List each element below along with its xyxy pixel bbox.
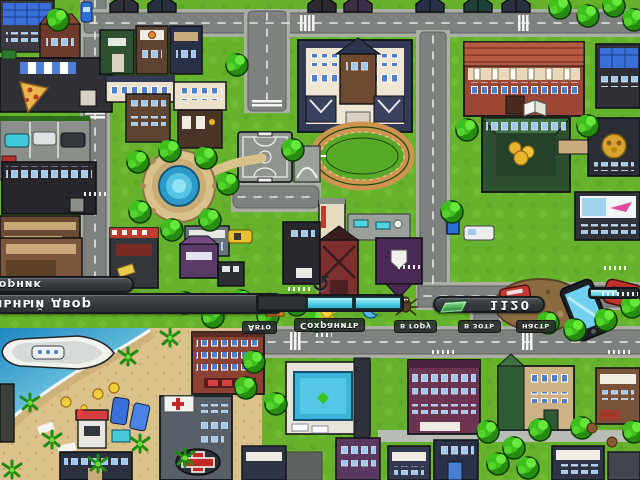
pizza-shop[interactable] [0,50,112,112]
money-bar[interactable]: 1120 [433,296,545,313]
cooler-box [112,430,130,442]
chick-pickup[interactable] [61,397,71,407]
menu-item-4[interactable]: в зоть [458,320,501,333]
refresh-arrow-icon[interactable]: ↺ [311,272,330,298]
car-cyan[interactable] [5,134,29,147]
running-track[interactable] [315,127,409,185]
road-ticks [432,350,456,354]
npc-name-bar[interactable]: Дворник [0,276,134,293]
brown-house-right[interactable] [596,368,640,424]
white-van[interactable] [464,226,494,240]
day-segment-empty [259,297,305,309]
menu-item-3[interactable]: в гору [394,320,437,333]
car-white[interactable] [33,132,56,145]
bottom-house-purple[interactable] [336,438,380,480]
menu-item-auto[interactable]: Авто [242,321,277,334]
chick-pickup[interactable] [93,389,103,399]
bank[interactable] [482,118,570,192]
gold-crest-icon [602,134,626,158]
location-bar[interactable]: Школьный двор [0,293,284,314]
mini-progress-bar [588,287,640,299]
cafe-patio[interactable] [348,214,410,240]
road-ticks [84,192,108,196]
tan-green-house[interactable] [498,354,574,430]
day-segment-filled [307,297,353,309]
bottom-house-navy-2[interactable] [242,446,286,480]
dumpster [2,50,16,59]
yacht[interactable] [2,336,114,369]
cash-icon [439,300,469,314]
game-screen: Дворник Школьный двор 1120 ↺ Авто Сохран… [0,0,640,480]
school-main[interactable] [298,38,412,132]
hospital-sign-top [164,396,194,412]
car-dark[interactable] [61,133,85,147]
pool-complex[interactable] [286,358,370,438]
billboard-building[interactable] [575,192,640,240]
money-amount: 1120 [490,298,531,312]
basketball-sign-icon [149,32,156,39]
hud-ticks [288,287,312,291]
hud-ticks [604,266,628,270]
backboard [258,132,272,136]
dark-office[interactable] [2,162,96,214]
bottom-house-blue[interactable] [434,440,478,480]
hud-ticks [398,265,422,269]
bottom-house-gray[interactable] [608,452,640,480]
chick-pickup[interactable] [109,383,119,393]
hud-ticks [316,333,332,337]
menu-item-5[interactable]: насть [516,320,556,333]
bottom-house-navy[interactable] [388,446,430,480]
purple-apartment[interactable] [408,360,480,434]
city-map [0,0,640,480]
kiosk[interactable] [218,262,244,286]
shops-row[interactable] [100,26,202,74]
blue-car[interactable] [81,2,92,22]
red-mansion[interactable] [464,42,584,116]
location-label: Школьный двор [0,296,92,311]
red-lamp [77,409,83,415]
solar-building-right[interactable] [596,44,640,108]
npc-name-label: Дворник [0,278,42,291]
bottom-house-white[interactable] [552,446,604,480]
road-ticks [608,350,632,354]
day-segment-filled [355,297,401,309]
taxi[interactable] [228,230,252,243]
backboard [258,178,272,182]
purple-cube-store[interactable] [180,236,218,278]
hospital[interactable] [160,396,232,480]
edge-building[interactable] [0,384,14,442]
menu-item-save[interactable]: Сохранить [294,318,365,332]
rooftop-houses [110,0,530,12]
food-stand[interactable] [76,409,108,448]
awning [20,62,76,74]
